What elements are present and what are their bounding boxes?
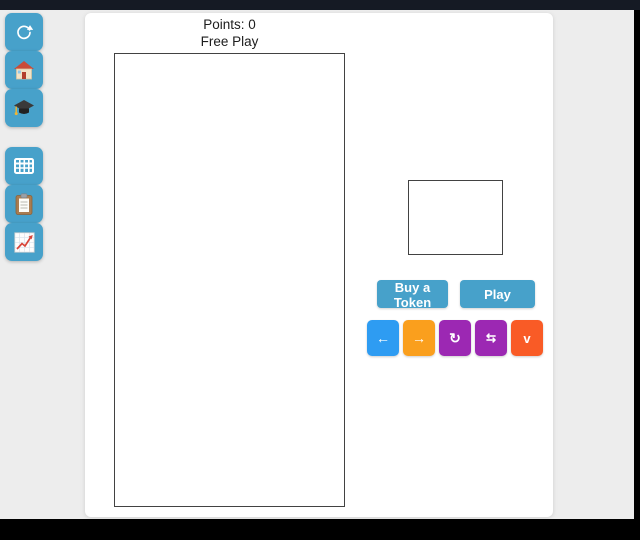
refresh-icon (14, 22, 34, 42)
drop-button[interactable]: v (511, 320, 543, 356)
app-root: Points: 0 Free Play Buy a Token Play ← →… (0, 0, 640, 540)
move-right-button[interactable]: → (403, 320, 435, 356)
game-controls: ← → ↻ ⇆ v (367, 320, 543, 356)
score-block: Points: 0 Free Play (114, 16, 345, 50)
rotate-icon: ↻ (449, 330, 461, 347)
sidebar-group-top (5, 13, 43, 127)
move-left-button[interactable]: ← (367, 320, 399, 356)
play-button[interactable]: Play (460, 280, 535, 308)
points-label: Points: 0 (114, 16, 345, 33)
house-icon (13, 60, 35, 80)
game-board (114, 53, 345, 507)
sidebar-button-home[interactable] (5, 51, 43, 89)
clipboard-icon (15, 193, 33, 215)
sidebar-group-bottom (5, 147, 43, 261)
sidebar-button-report[interactable] (5, 185, 43, 223)
chart-icon (14, 232, 35, 253)
game-panel: Points: 0 Free Play Buy a Token Play ← →… (85, 13, 553, 517)
top-bar (0, 0, 640, 10)
grid-icon (14, 158, 34, 174)
next-piece-preview (408, 180, 503, 255)
flip-button[interactable]: ⇆ (475, 320, 507, 356)
sidebar-button-table[interactable] (5, 147, 43, 185)
chevron-down-icon: v (523, 331, 530, 346)
sidebar-button-progress[interactable] (5, 223, 43, 261)
mode-label: Free Play (114, 33, 345, 50)
arrow-right-icon: → (412, 330, 426, 346)
buy-token-button[interactable]: Buy a Token (377, 280, 448, 308)
sidebar-button-refresh[interactable] (5, 13, 43, 51)
graduation-cap-icon (13, 99, 35, 118)
rotate-button[interactable]: ↻ (439, 320, 471, 356)
swap-arrows-icon: ⇆ (486, 331, 496, 345)
arrow-left-icon: ← (376, 330, 390, 346)
sidebar-button-learn[interactable] (5, 89, 43, 127)
